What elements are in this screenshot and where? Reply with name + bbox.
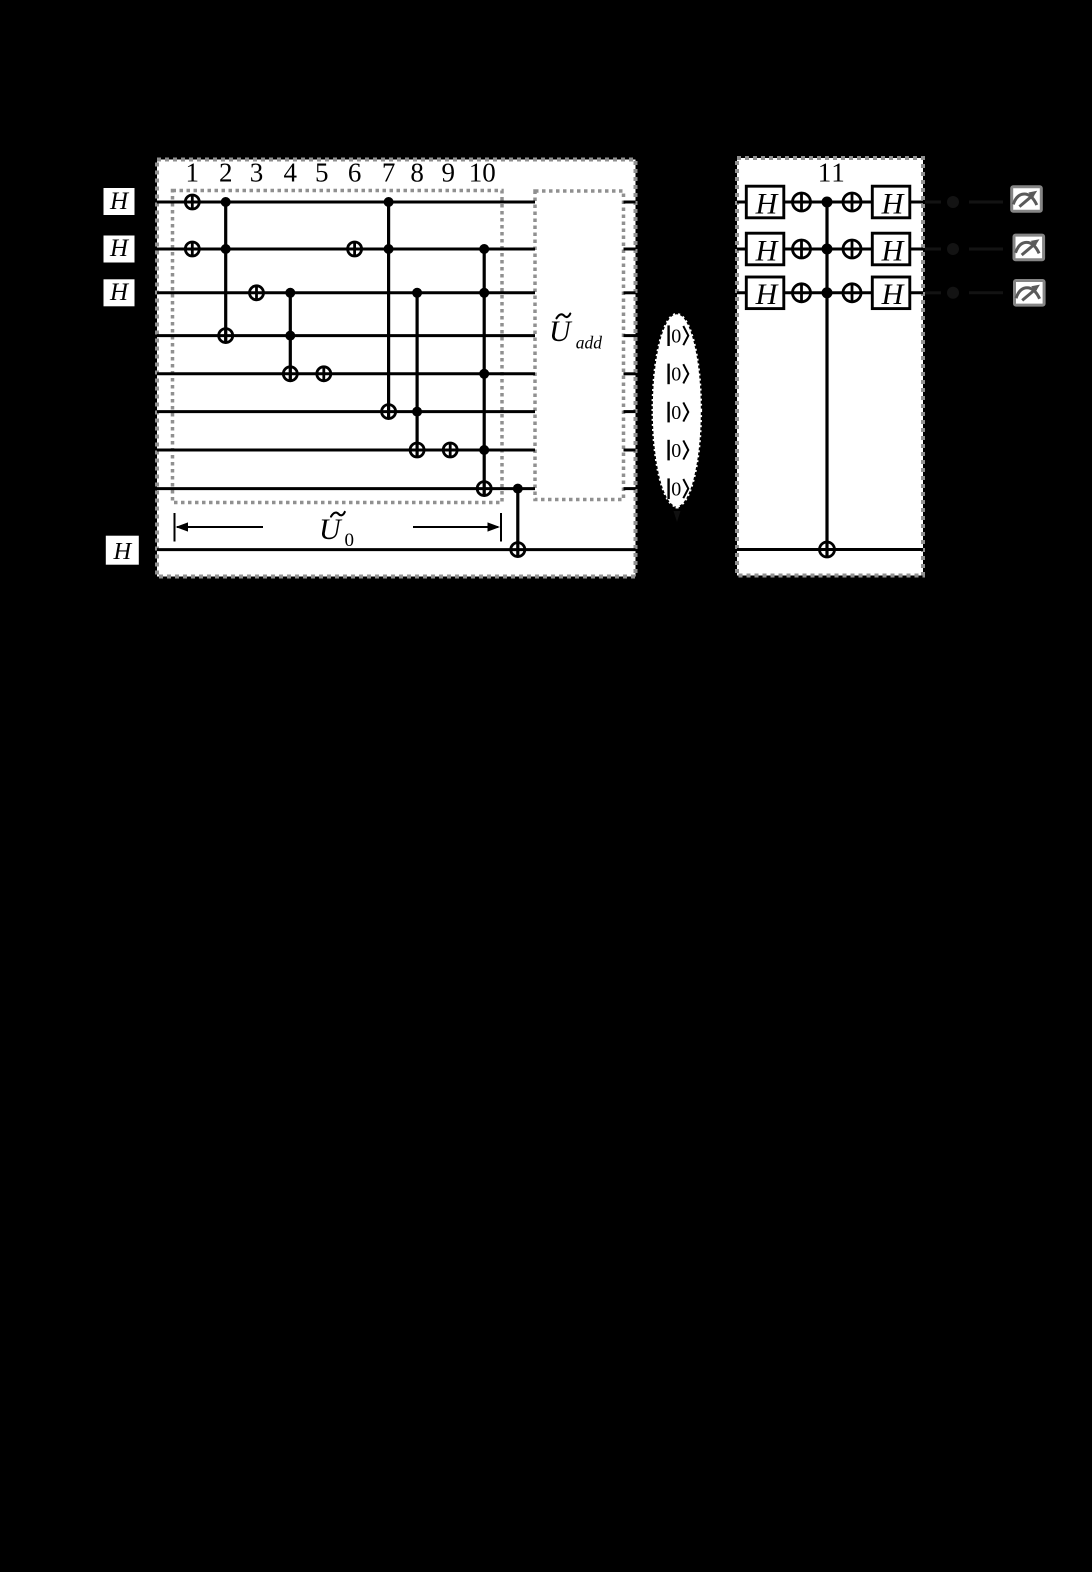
svg-text:0: 0	[671, 325, 681, 347]
svg-text:U: U	[319, 513, 343, 546]
svg-text:H: H	[109, 235, 130, 262]
svg-text:1: 1	[831, 158, 845, 188]
svg-text:H: H	[112, 538, 132, 565]
svg-text:2: 2	[219, 158, 233, 188]
svg-text:7: 7	[382, 158, 396, 188]
svg-text:H: H	[755, 187, 780, 220]
svg-text:U: U	[549, 315, 573, 348]
svg-text:10: 10	[469, 158, 496, 188]
svg-text:0: 0	[671, 402, 681, 424]
svg-text:4: 4	[284, 158, 298, 188]
svg-text:H: H	[755, 278, 780, 311]
svg-text:6: 6	[348, 158, 362, 188]
svg-text:add: add	[576, 332, 603, 352]
svg-text:1: 1	[186, 158, 200, 188]
svg-text:H: H	[109, 279, 130, 306]
svg-text:9: 9	[441, 158, 455, 188]
svg-text:8: 8	[410, 158, 424, 188]
svg-text:H: H	[881, 234, 906, 267]
svg-text:H: H	[109, 188, 130, 215]
svg-text:H: H	[881, 187, 906, 220]
svg-text:5: 5	[315, 158, 329, 188]
svg-text:0: 0	[671, 364, 681, 386]
svg-text:H: H	[881, 278, 906, 311]
svg-text:3: 3	[250, 158, 264, 188]
svg-text:0: 0	[671, 478, 681, 500]
svg-text:0: 0	[671, 440, 681, 462]
svg-text:0: 0	[345, 530, 355, 551]
svg-text:H: H	[755, 234, 780, 267]
svg-text:1: 1	[818, 158, 832, 188]
